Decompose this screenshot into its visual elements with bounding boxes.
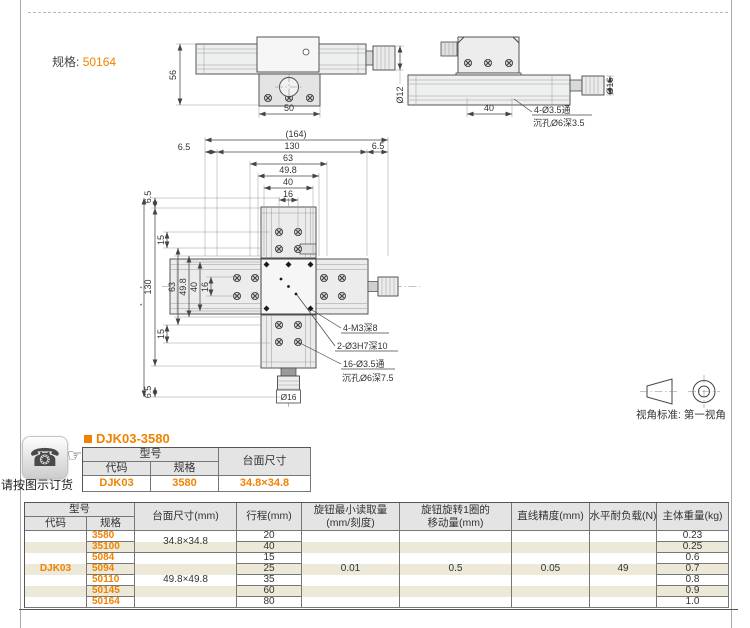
dim-label: 15 bbox=[156, 235, 166, 245]
dim-label: 63 bbox=[283, 153, 293, 163]
technical-drawing: 56 50 Ø12 bbox=[140, 25, 740, 435]
page-top-divider bbox=[28, 12, 728, 13]
dim-label: (164) bbox=[285, 129, 306, 139]
catalog-page: 规格: 50164 bbox=[0, 0, 750, 628]
dim-label: 40 bbox=[484, 103, 494, 113]
page-left-border bbox=[20, 0, 21, 628]
front-view-drawing: 56 50 Ø12 bbox=[168, 37, 405, 118]
order-example-title: DJK03-3580 bbox=[84, 431, 170, 446]
view-standard-label: 视角标准: 第一视角 bbox=[636, 408, 726, 421]
pointing-hand-icon: ☞ bbox=[67, 446, 82, 466]
section-bullet bbox=[84, 435, 92, 443]
col-header-travel: 行程(mm) bbox=[237, 503, 302, 531]
table-cell: 50164 bbox=[87, 597, 135, 608]
col-header-size: 台面尺寸(mm) bbox=[135, 503, 237, 531]
spec-table: 型号 代码 规格 台面尺寸(mm) 行程(mm) 旋钮最小读取量 (mm/刻度)… bbox=[24, 502, 729, 608]
dim-label: Ø16 bbox=[280, 392, 296, 402]
order-code-header: 代码 bbox=[83, 462, 151, 476]
table-cell: 1.0 bbox=[657, 597, 729, 608]
load-cell: 49 bbox=[590, 531, 657, 608]
phone-icon: ☎ bbox=[22, 436, 68, 479]
per-turn-cell: 0.5 bbox=[400, 531, 512, 608]
order-code-value: DJK03 bbox=[83, 476, 151, 492]
dim-label: 49.8 bbox=[178, 278, 188, 296]
plan-view-drawing: Ø16 (164) 6.5 130 6.5 63 49.8 40 16 (164… bbox=[140, 129, 420, 407]
dim-label: 56 bbox=[168, 70, 178, 80]
dim-label: 50 bbox=[284, 103, 294, 113]
order-model-header: 型号 bbox=[83, 448, 219, 462]
order-size-value: 34.8×34.8 bbox=[219, 476, 311, 492]
dowel-note: 2-Ø3H7深10 bbox=[337, 341, 388, 351]
m3-note: 4-M3深8 bbox=[343, 323, 378, 333]
col-header-per-turn: 旋钮旋转1圈的 移动量(mm) bbox=[400, 503, 512, 531]
counterbore-note: 沉孔Ø6深7.5 bbox=[342, 373, 394, 383]
dim-label: (164) bbox=[140, 285, 142, 306]
table-cell: 80 bbox=[237, 597, 302, 608]
dim-label: Ø12 bbox=[395, 86, 405, 103]
dim-label: Ø16 bbox=[605, 77, 615, 94]
dim-label: 15 bbox=[156, 329, 166, 339]
dim-label: 6.5 bbox=[143, 386, 153, 399]
phone-glyph: ☎ bbox=[29, 443, 60, 473]
spec-label: 规格: bbox=[52, 55, 79, 69]
dim-label: 130 bbox=[284, 141, 299, 151]
order-example-table: 型号 台面尺寸 代码 规格 DJK03 3580 34.8×34.8 bbox=[82, 447, 311, 492]
dim-label: 49.8 bbox=[279, 165, 297, 175]
min-reading-cell: 0.01 bbox=[302, 531, 400, 608]
order-spec-header: 规格 bbox=[151, 462, 219, 476]
side-view-drawing: Ø16 40 4-Ø3.5通 沉孔Ø6深3.5 bbox=[408, 37, 615, 128]
dim-label: 40 bbox=[189, 282, 199, 292]
col-header-load: 水平耐负载(N) bbox=[590, 503, 657, 531]
order-title-text: DJK03-3580 bbox=[96, 431, 170, 446]
spec-line: 规格: 50164 bbox=[52, 53, 116, 70]
col-header-min-reading: 旋钮最小读取量 (mm/刻度) bbox=[302, 503, 400, 531]
accuracy-cell: 0.05 bbox=[512, 531, 590, 608]
dim-label: 130 bbox=[143, 279, 153, 294]
counterbore-note: 沉孔Ø6深3.5 bbox=[533, 118, 585, 128]
col-header-spec: 规格 bbox=[87, 517, 135, 531]
dim-label: 16 bbox=[200, 282, 210, 292]
dim-label: 6.5 bbox=[178, 142, 191, 152]
spec-value: 50164 bbox=[83, 55, 116, 69]
order-size-header: 台面尺寸 bbox=[219, 448, 311, 476]
col-header-accuracy: 直线精度(mm) bbox=[512, 503, 590, 531]
dim-label: 6.5 bbox=[372, 141, 385, 151]
dim-label: 16 bbox=[283, 189, 293, 199]
view-standard-symbol: 视角标准: 第一视角 bbox=[636, 375, 726, 421]
col-header-model: 型号 bbox=[25, 503, 135, 517]
size-cell: 34.8×34.8 bbox=[135, 531, 237, 553]
dim-label: 6.5 bbox=[143, 191, 153, 204]
order-spec-value: 3580 bbox=[151, 476, 219, 492]
dim-label: 40 bbox=[283, 177, 293, 187]
size-cell: 49.8×49.8 bbox=[135, 553, 237, 608]
thru-hole-note: 16-Ø3.5通 bbox=[343, 359, 385, 369]
drill-note: 4-Ø3.5通 bbox=[534, 105, 571, 115]
section-bottom-rule bbox=[19, 609, 738, 610]
order-caption: 请按图示订货 bbox=[1, 476, 73, 493]
code-cell: DJK03 bbox=[25, 531, 87, 608]
col-header-weight: 主体重量(kg) bbox=[657, 503, 729, 531]
dim-label: 63 bbox=[167, 282, 177, 292]
col-header-code: 代码 bbox=[25, 517, 87, 531]
